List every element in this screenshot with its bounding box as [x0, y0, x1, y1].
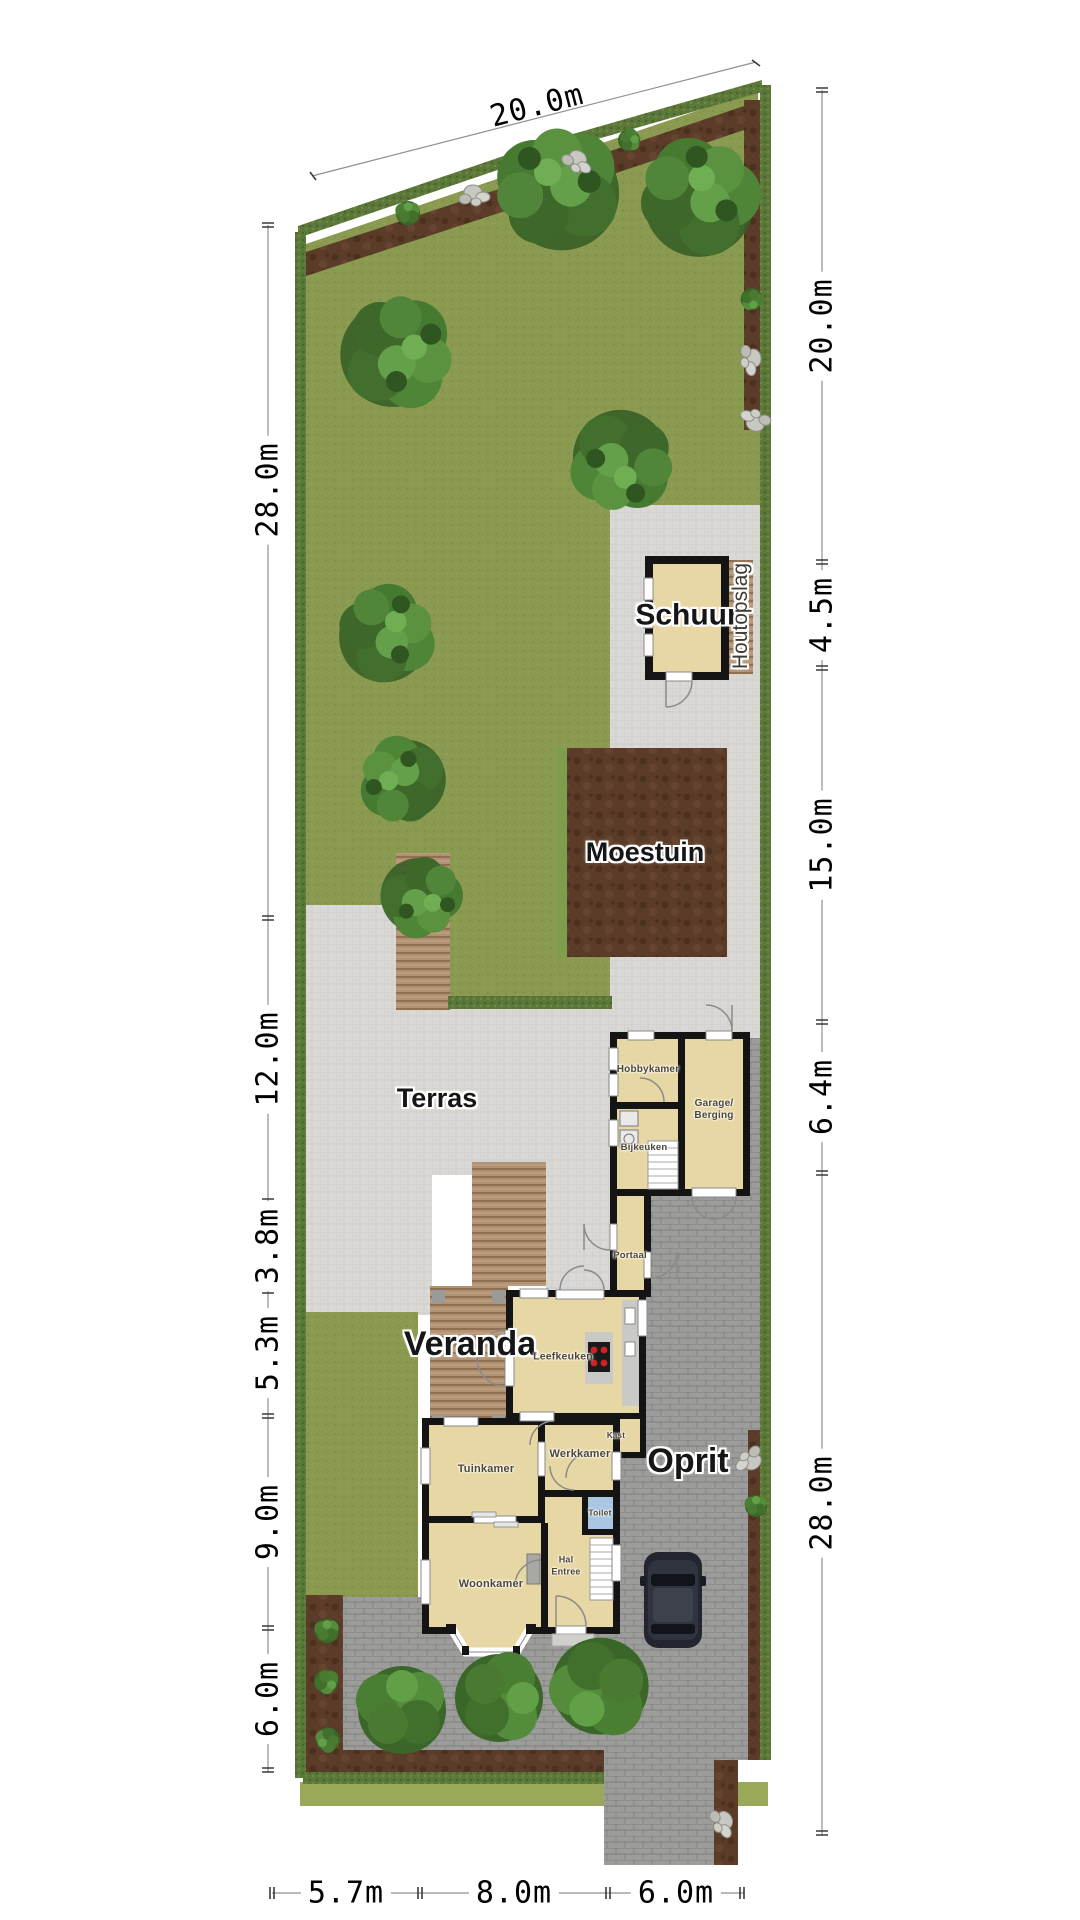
- label-toilet: Toilet: [588, 1509, 611, 1518]
- label-houtopslag: Houtopslag: [730, 563, 752, 669]
- label-hobbykamer: Hobbykamer: [617, 1065, 680, 1076]
- deck-walkway: [472, 1162, 546, 1286]
- dim-left-3: 5.3m: [252, 1308, 284, 1398]
- label-garage-1: Garage/: [695, 1099, 734, 1110]
- label-hal-1: Hal: [559, 1555, 574, 1564]
- dim-right-0: 20.0m: [806, 271, 838, 380]
- dim-bottom-0: 5.7m: [301, 1877, 391, 1909]
- label-portaal: Portaal: [613, 1251, 647, 1261]
- label-tuinkamer: Tuinkamer: [458, 1464, 515, 1476]
- label-woonkamer: Woonkamer: [459, 1579, 524, 1591]
- label-hal-2: Entree: [551, 1567, 580, 1576]
- label-kast: Kast: [607, 1432, 625, 1440]
- label-leefkeuken: Leefkeuken: [533, 1351, 593, 1362]
- dim-bottom-2: 6.0m: [631, 1877, 721, 1909]
- dim-right-1: 4.5m: [806, 570, 838, 660]
- label-moestuin: Moestuin: [586, 838, 705, 866]
- dim-left-1: 12.0m: [252, 1004, 284, 1113]
- dim-left-4: 9.0m: [252, 1477, 284, 1567]
- label-garage-2: Berging: [694, 1111, 733, 1122]
- label-oprit: Oprit: [647, 1444, 728, 1480]
- label-terras: Terras: [397, 1084, 478, 1112]
- dim-left-5: 6.0m: [252, 1654, 284, 1744]
- kitchen-counter: [622, 1300, 639, 1406]
- dim-right-3: 6.4m: [806, 1052, 838, 1142]
- dim-right-2: 15.0m: [806, 790, 838, 899]
- stairs-hal: [590, 1538, 613, 1600]
- label-veranda: Veranda: [404, 1327, 536, 1363]
- dim-left-0: 28.0m: [252, 435, 284, 544]
- label-werkkamer: Werkkamer: [550, 1449, 611, 1461]
- dim-bottom-1: 8.0m: [469, 1877, 559, 1909]
- car: [640, 1552, 706, 1648]
- bay-window: [446, 1621, 536, 1655]
- label-bijkeuken: Bijkeuken: [621, 1143, 668, 1153]
- label-schuur: Schuur: [635, 599, 738, 631]
- dim-left-2: 3.8m: [252, 1201, 284, 1291]
- siteplan-canvas: 20.0m 28.0m 12.0m 3.8m 5.3m 9.0m 6.0m 20…: [0, 0, 1080, 1920]
- dim-right-4: 28.0m: [806, 1448, 838, 1557]
- site-plan-graphic: [0, 0, 1080, 1920]
